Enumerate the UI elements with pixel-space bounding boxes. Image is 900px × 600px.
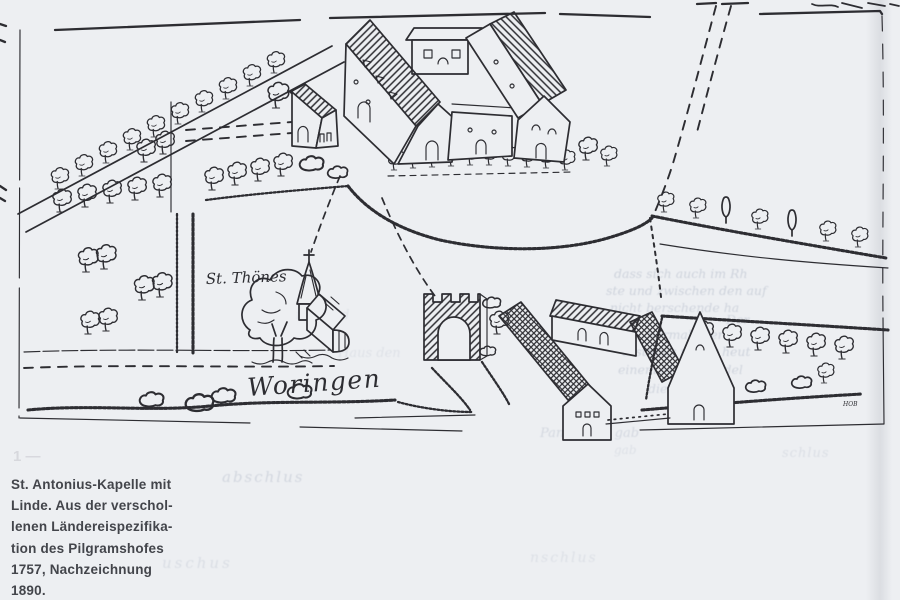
road-dotted-continuation — [650, 218, 661, 297]
chapel-cross — [304, 250, 314, 262]
artist-mark: HOB — [842, 401, 858, 408]
scanned-book-page: dass sich auch im Rh ste und zwischen de… — [0, 0, 900, 600]
cottage — [290, 84, 338, 148]
road-diagonal-upper-edge — [18, 46, 332, 214]
map-drawing: St. Thönes Woringen HOB — [0, 0, 900, 450]
hedge-gate-right — [482, 362, 509, 404]
hedge-bottom-center — [398, 402, 472, 412]
caption-line: tion des Pilgramshofes — [11, 538, 211, 559]
chapel-apse — [333, 330, 349, 352]
road-topright-dashed-1 — [654, 6, 716, 214]
caption-line: 1890. — [11, 580, 211, 600]
road-horizontal-2 — [24, 366, 334, 368]
caption-line: lenen Ländereispezifika- — [11, 516, 211, 537]
hedge-gate-left — [432, 368, 470, 410]
border-bottom — [20, 418, 884, 431]
ground-line-farm-row — [388, 172, 572, 176]
farmstead-lower — [499, 300, 734, 440]
caption-line: Linde. Aus der verschol- — [11, 495, 211, 516]
caption-line: 1757, Nachzeichnung — [11, 559, 211, 580]
path-farm-to-gate — [382, 198, 435, 296]
front-range-wall — [448, 112, 512, 160]
ghost-fragment: abschlus — [222, 468, 304, 486]
hedge-courtyard-loop — [348, 186, 652, 249]
border-top — [55, 13, 650, 30]
hedge-left — [206, 186, 348, 200]
hedge-lane-upper — [652, 216, 886, 258]
label-woringen: Woringen — [246, 364, 382, 402]
gate-arch — [424, 294, 487, 360]
ghost-fragment: nschlus — [530, 550, 598, 566]
gate-opening — [438, 317, 470, 360]
road-topright-dashed-2 — [696, 6, 731, 136]
caption-line: St. Antonius-Kapelle mit — [11, 474, 211, 495]
figure-marker: 1 — — [13, 448, 41, 465]
label-st-thoenes: St. Thönes — [206, 267, 288, 288]
border-left — [19, 30, 20, 418]
chapel — [297, 250, 349, 360]
lane-lower-edge — [660, 244, 888, 268]
border-top-right — [760, 11, 882, 14]
figure-caption: St. Antonius-Kapelle mit Linde. Aus der … — [11, 474, 211, 600]
ground-line-gate — [355, 415, 475, 418]
border-right-solid — [883, 318, 884, 424]
farmstead-upper — [344, 12, 570, 164]
border-right-dashed — [882, 16, 883, 318]
